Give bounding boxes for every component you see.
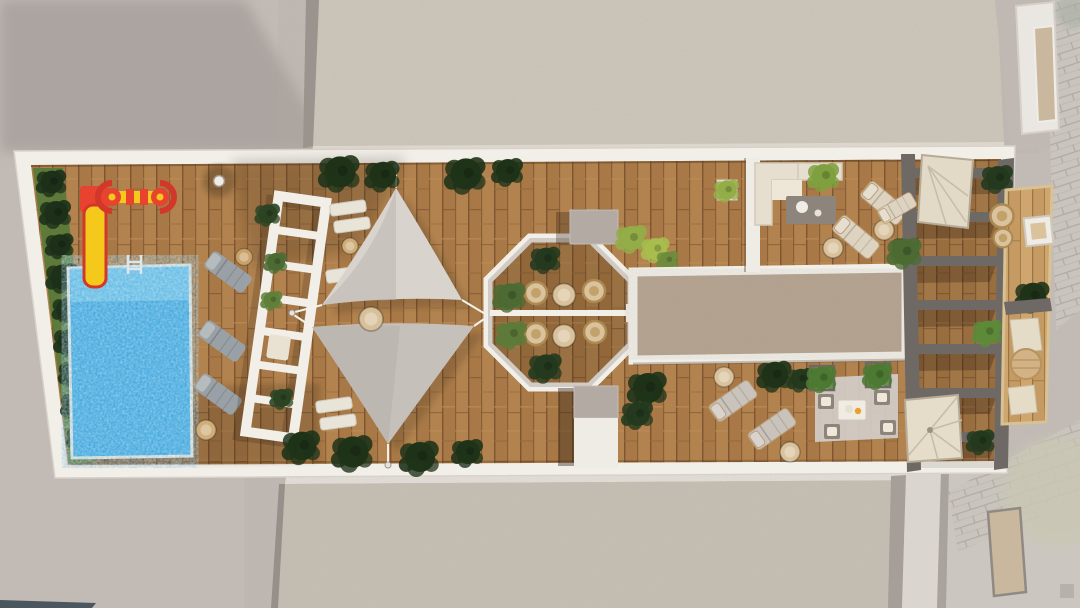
balcony-table (1024, 216, 1054, 247)
rooftop-render (0, 0, 1080, 608)
sail-side-table (342, 238, 358, 254)
pool-depth-texture (68, 265, 192, 458)
spinner-cap-left (109, 194, 116, 201)
gazebo-table (553, 325, 576, 348)
gazebo-table (553, 284, 576, 307)
coffee-table (786, 196, 836, 224)
trellis-chair (266, 334, 291, 361)
plant (972, 320, 1002, 348)
plant (269, 388, 293, 410)
plant (966, 429, 995, 455)
gazebo-block-south (574, 386, 618, 418)
bulkhead-window (1034, 26, 1056, 122)
gravel-roof-top (303, 0, 1005, 155)
coffee-table-tray (796, 201, 808, 213)
hanging-chair (994, 229, 1013, 248)
block-shadow-south (558, 388, 574, 466)
plant (806, 366, 836, 394)
spinner-cap-right (157, 194, 164, 201)
stair-landing-top (918, 155, 973, 228)
plant (528, 353, 562, 383)
plant (615, 225, 647, 254)
gazebo-chair (583, 280, 605, 302)
plant (862, 363, 892, 391)
slide (84, 205, 106, 287)
plant (260, 291, 282, 311)
plant (621, 401, 653, 430)
fan-stair-bottom (905, 395, 962, 462)
balcony-round-table (1011, 349, 1041, 379)
deck-lamp (203, 165, 235, 197)
pergola-roof-speckle (638, 273, 901, 355)
plate (845, 405, 853, 413)
balcony-pouf (1008, 385, 1037, 415)
pool-side-table (236, 249, 253, 266)
gravel-top-speckle (313, 0, 1004, 146)
hanging-chair (990, 204, 1013, 227)
white-column-south (574, 418, 618, 468)
plant (886, 238, 921, 270)
pool-wicker-pouf (196, 420, 216, 440)
coffee-table-deco (815, 210, 822, 217)
block-shadow-top (556, 212, 570, 244)
pergola-green-roof (626, 268, 906, 364)
plant (530, 247, 560, 275)
street-marking (1060, 584, 1074, 598)
plant (756, 361, 791, 393)
spinner-grip-1 (126, 189, 134, 205)
gazebo-chair (525, 323, 547, 345)
plant (807, 163, 839, 192)
walkway-strip (902, 472, 941, 608)
gravel-roof-bottom (271, 467, 954, 608)
side-table (714, 367, 734, 387)
spinner-grip-2 (140, 189, 148, 205)
gravel-bottom-speckle (278, 480, 952, 608)
gazebo-block-north (570, 210, 618, 244)
side-table (780, 442, 800, 462)
side-table (823, 238, 843, 258)
food-bowl (855, 408, 861, 414)
gazebo-chair (525, 282, 547, 304)
stair-center-post (927, 427, 933, 433)
plant (495, 321, 527, 350)
plant (254, 204, 280, 227)
balcony-lounge-chair (1010, 318, 1042, 353)
skylight (988, 508, 1026, 596)
planter-box (713, 180, 739, 203)
plant (263, 252, 287, 274)
plant (713, 180, 739, 203)
lamp-globe (214, 176, 225, 187)
render-canvas (0, 0, 1080, 608)
sail-center-table (359, 307, 383, 331)
plant (492, 282, 526, 312)
gazebo-chair (584, 321, 606, 343)
